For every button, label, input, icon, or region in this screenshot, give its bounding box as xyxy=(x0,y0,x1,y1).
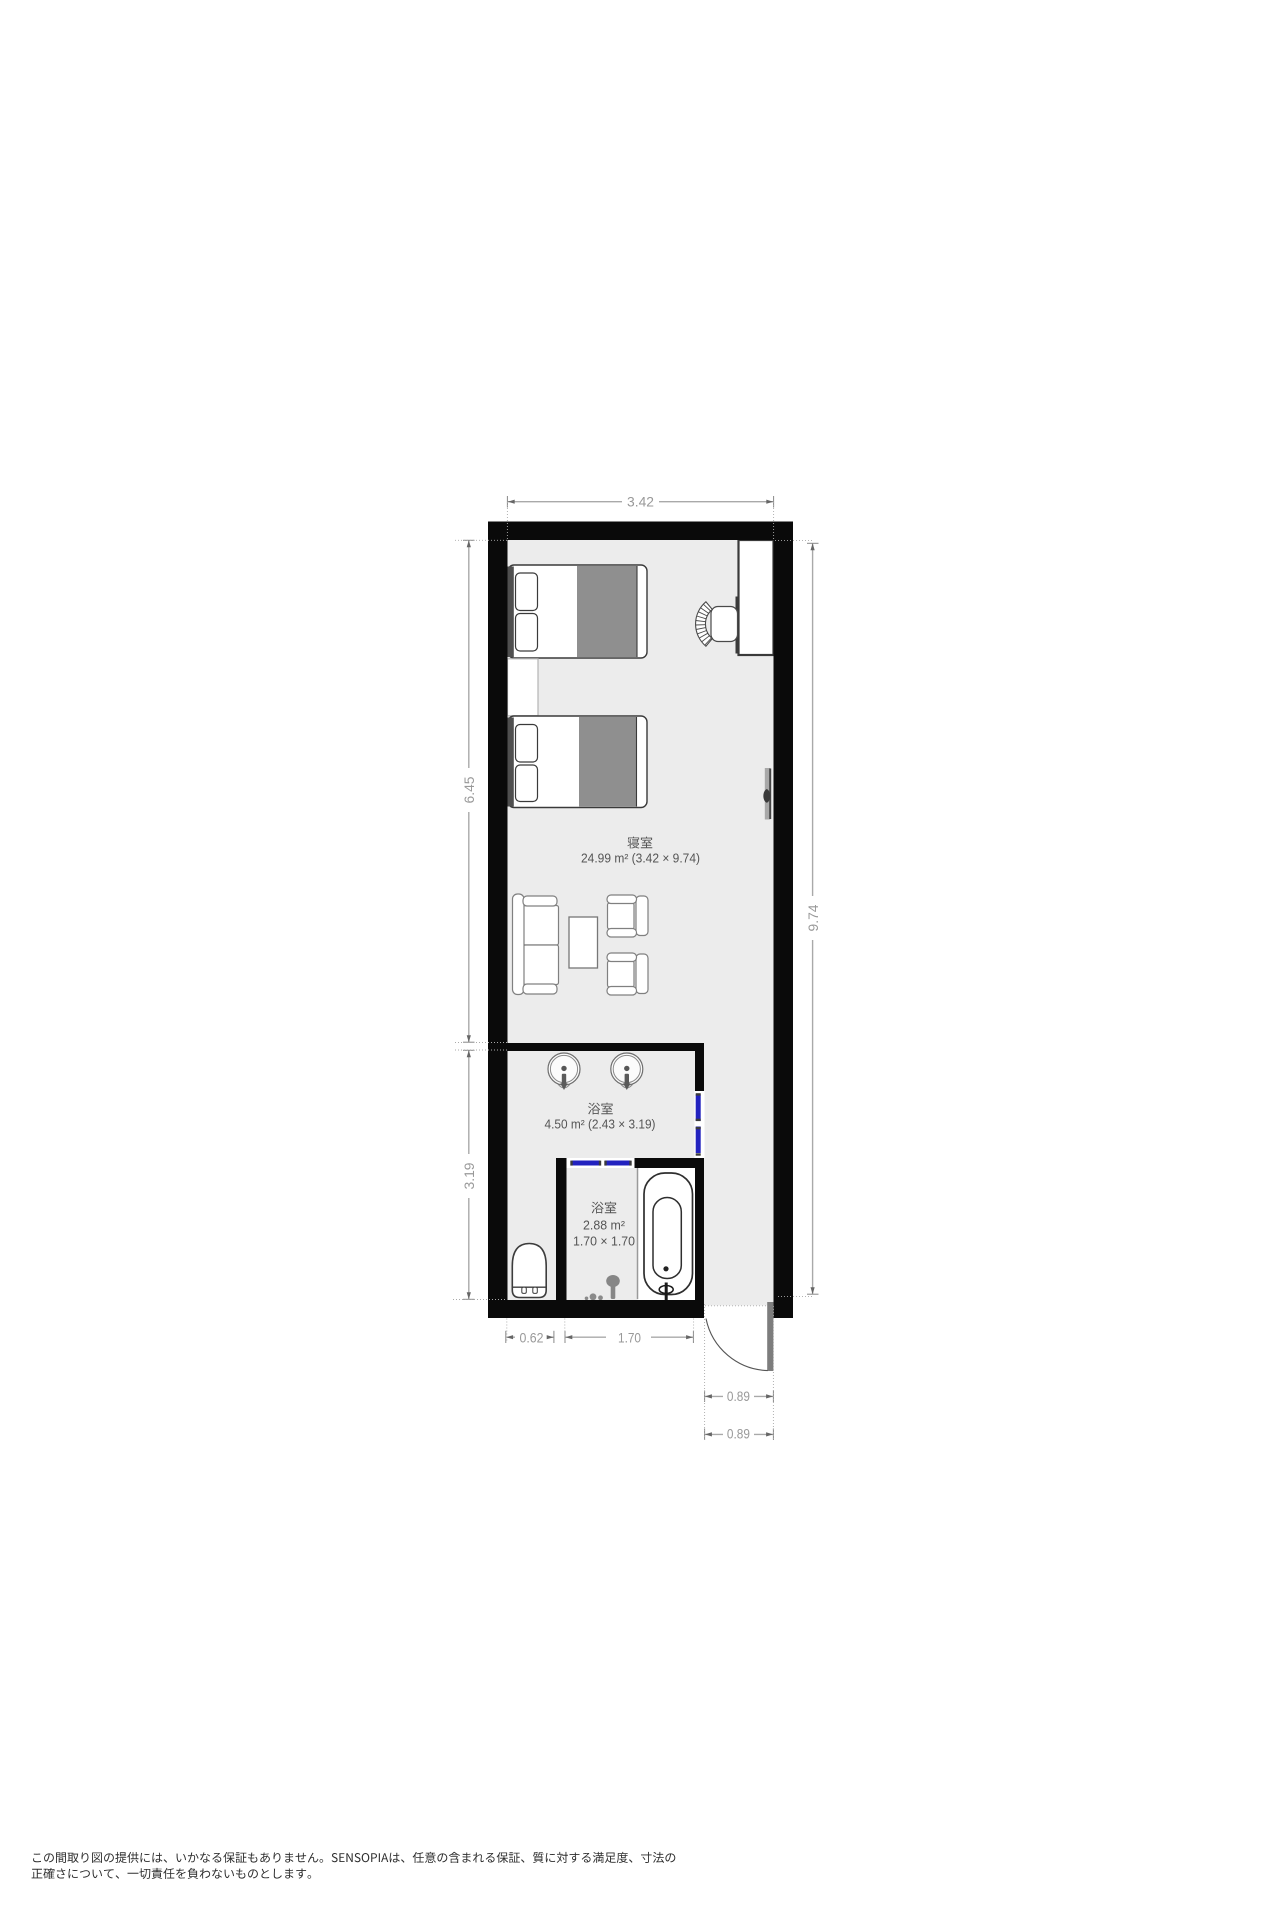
svg-text:3.19: 3.19 xyxy=(461,1162,477,1189)
svg-text:6.45: 6.45 xyxy=(461,776,477,803)
svg-text:4.50 m² (2.43 × 3.19): 4.50 m² (2.43 × 3.19) xyxy=(545,1116,656,1131)
svg-text:0.62: 0.62 xyxy=(520,1329,544,1345)
svg-text:9.74: 9.74 xyxy=(805,904,821,931)
svg-text:1.70 × 1.70: 1.70 × 1.70 xyxy=(573,1234,635,1249)
svg-text:24.99 m² (3.42 × 9.74): 24.99 m² (3.42 × 9.74) xyxy=(581,850,700,865)
svg-text:3.42: 3.42 xyxy=(627,494,654,510)
svg-text:0.89: 0.89 xyxy=(727,1388,750,1404)
svg-text:2.88 m²: 2.88 m² xyxy=(583,1218,626,1233)
svg-text:0.89: 0.89 xyxy=(727,1426,750,1442)
svg-text:1.70: 1.70 xyxy=(618,1329,641,1345)
